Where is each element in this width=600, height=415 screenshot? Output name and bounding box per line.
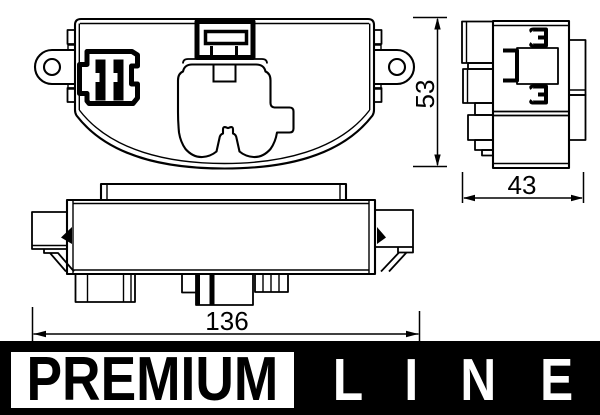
profile-view (32, 184, 413, 305)
premium-label: PREMIUM (27, 352, 279, 408)
mounting-ear-left (35, 50, 75, 84)
dimension-43: 43 (463, 170, 584, 203)
profile-right-wedge (377, 227, 386, 244)
profile-foot-left (76, 274, 136, 302)
profile-rib-tabs (255, 274, 288, 292)
side-clip-upper (531, 30, 546, 46)
connector-left-outline (80, 52, 138, 104)
arrow-down (434, 155, 440, 167)
connector-left (80, 52, 138, 104)
profile-connector-left (32, 212, 67, 249)
profile-right-gusset (381, 253, 407, 272)
dimension-136: 136 (33, 306, 420, 341)
line-letter-e: E (540, 351, 573, 410)
dimension-136-label: 136 (205, 306, 248, 336)
technical-drawing: 53 (0, 0, 600, 341)
catalog-image: 53 (0, 0, 600, 415)
profile-top-plate-caps (107, 184, 340, 200)
premium-badge: PREMIUM (11, 352, 294, 408)
dimension-53: 53 (410, 18, 447, 167)
arrow-right (406, 331, 419, 337)
connector-top-pin-1 (210, 46, 213, 57)
arrow-left (34, 331, 47, 337)
side-left-steps (462, 22, 493, 156)
arrow-right (571, 195, 583, 201)
connector-top (183, 22, 267, 64)
mounting-hole-right (389, 59, 405, 75)
front-view (35, 19, 414, 169)
profile-top-plate (101, 184, 346, 200)
pin-2-notch (114, 73, 118, 82)
dimension-43-label: 43 (508, 170, 537, 200)
side-inner-rect (517, 48, 558, 84)
side-divider (493, 112, 569, 116)
profile-bottom-connector (182, 274, 253, 305)
side-right-tabs (569, 40, 586, 140)
line-letter-l: L (333, 351, 363, 410)
premium-line-banner: PREMIUM L I N E (0, 341, 600, 415)
mounting-hole-left (44, 59, 60, 75)
profile-left-gusset (44, 249, 74, 272)
line-wordmark: L I N E (330, 352, 576, 408)
connector-top-slot (206, 32, 247, 44)
line-letter-i: I (405, 351, 419, 410)
side-clamp (503, 51, 517, 81)
arrow-up (434, 18, 440, 30)
profile-body-inner (73, 200, 369, 274)
side-view (462, 21, 586, 168)
heatsink-top-notch (214, 65, 236, 82)
line-letter-n: N (460, 351, 496, 410)
profile-connector-right (375, 210, 413, 247)
mounting-ear-right (374, 50, 414, 84)
profile-body (67, 200, 375, 274)
dimension-53-label: 53 (410, 80, 440, 109)
pin-1-notch (96, 73, 100, 82)
arrow-left (463, 195, 475, 201)
side-clip-lower (531, 87, 546, 103)
connector-top-pin-2 (235, 46, 238, 57)
